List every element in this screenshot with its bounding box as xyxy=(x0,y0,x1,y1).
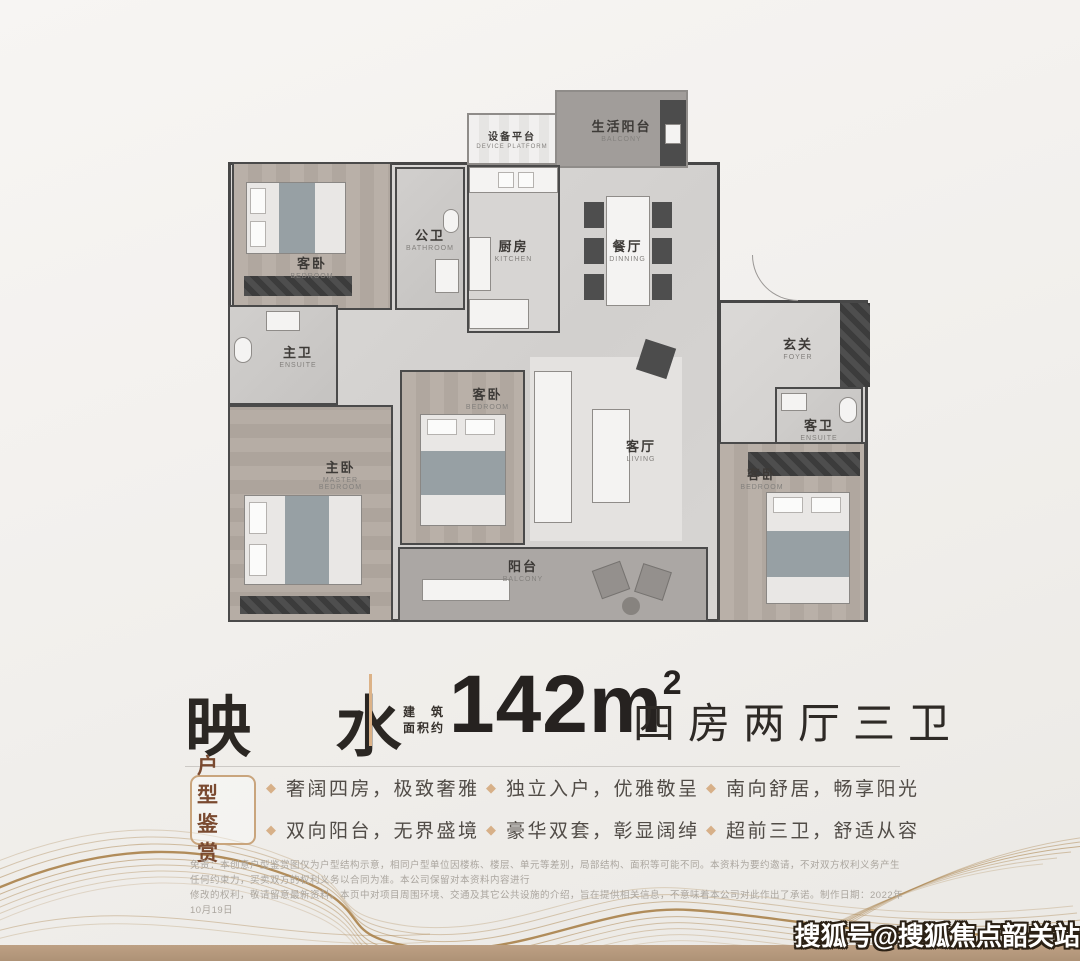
patio-chair-icon xyxy=(634,563,672,601)
dining-chair-icon xyxy=(652,202,672,228)
room-label-en: BALCONY xyxy=(591,136,651,143)
feature-text: 超前三卫，舒适从容 xyxy=(726,816,920,843)
area-prefix: 建 筑 面积约 xyxy=(403,704,443,736)
room-foyer: 玄关 FOYER xyxy=(742,303,854,391)
shower-icon xyxy=(435,259,459,293)
bed-icon xyxy=(244,495,362,585)
sink-icon xyxy=(781,393,807,411)
feature-item: ◆ 独立入户，优雅敬呈 xyxy=(486,774,700,800)
room-label-en: BEDROOM xyxy=(290,273,333,280)
room-label-en: LIVING xyxy=(626,456,656,463)
bed-icon xyxy=(420,414,506,526)
room-label-zh: 客卧 xyxy=(466,384,509,403)
room-label-zh: 主卫 xyxy=(279,342,316,361)
feature-item: ◆ 超前三卫，舒适从容 xyxy=(706,816,920,842)
feature-column-2: ◆ 独立入户，优雅敬呈 ◆ 豪华双套，彰显阔绰 xyxy=(486,774,700,842)
room-life-balcony: 生活阳台 BALCONY xyxy=(555,90,688,168)
entry-door-arc xyxy=(752,255,798,301)
dining-chair-icon xyxy=(652,238,672,264)
room-label-en: DINNING xyxy=(609,256,646,263)
feature-item: ◆ 南向舒居，畅享阳光 xyxy=(706,774,920,800)
room-label-en: BALCONY xyxy=(503,576,543,583)
diamond-bullet-icon: ◆ xyxy=(706,823,716,836)
layout-description: 四房两厅三卫 xyxy=(633,690,963,751)
room-label-zh: 客卧 xyxy=(740,464,783,483)
feature-item: ◆ 奢阔四房，极致奢雅 xyxy=(266,774,480,800)
room-label-zh: 玄关 xyxy=(783,334,813,353)
room-label-zh: 客厅 xyxy=(626,436,656,455)
diamond-bullet-icon: ◆ xyxy=(706,781,716,794)
feature-text: 豪华双套，彰显阔绰 xyxy=(506,816,700,843)
room-kitchen: 厨房 KITCHEN xyxy=(467,165,560,333)
sink-icon xyxy=(266,311,300,331)
patio-chair-icon xyxy=(592,561,630,599)
feature-column-3: ◆ 南向舒居，畅享阳光 ◆ 超前三卫，舒适从容 xyxy=(706,774,920,842)
room-living: 客厅 LIVING xyxy=(530,357,682,541)
room-label-en: MASTER BEDROOM xyxy=(311,477,371,491)
room-master-ensuite: 主卫 ENSUITE xyxy=(228,305,338,405)
room-label-en: FOYER xyxy=(783,354,813,361)
dining-chair-icon xyxy=(652,274,672,300)
features-section: 户 型 鉴 赏 ◆ 奢阔四房，极致奢雅 ◆ 双向阳台，无界盛境 ◆ 独立入户，优… xyxy=(190,774,910,850)
bed-icon xyxy=(246,182,346,254)
disclaimer-line1: 免责：本创意户型鉴赏图仅为户型结构示意，相同户型单位因楼栋、楼层、单元等差别，局… xyxy=(190,858,908,888)
coffee-table-icon xyxy=(592,409,630,503)
kitchen-sink-icon xyxy=(469,167,558,193)
feature-item: ◆ 双向阳台，无界盛境 xyxy=(266,816,480,842)
room-master-bedroom: 主卧 MASTER BEDROOM xyxy=(228,405,393,622)
room-label-en: BATHROOM xyxy=(406,245,454,252)
room-label-zh: 客卧 xyxy=(290,253,333,272)
feature-text: 奢阔四房，极致奢雅 xyxy=(286,774,480,801)
room-label-zh: 生活阳台 xyxy=(591,116,651,135)
room-label-zh: 设备平台 xyxy=(476,128,547,143)
disclaimer: 免责：本创意户型鉴赏图仅为户型结构示意，相同户型单位因楼栋、楼层、单元等差别，局… xyxy=(190,858,908,918)
room-bedroom-south: 客卧 BEDROOM xyxy=(718,442,866,622)
watermark: 搜狐号@搜狐焦点韶关站 xyxy=(795,916,1080,953)
bench-icon xyxy=(422,579,510,601)
room-label-zh: 主卧 xyxy=(311,457,371,476)
title-row: 映 水 建 筑 面积约 142m2 四房两厅三卫 xyxy=(185,672,900,758)
room-bedroom-north: 客卧 BEDROOM xyxy=(232,162,392,310)
room-label-en: ENSUITE xyxy=(800,435,837,442)
room-label-en: DEVICE PLATFORM xyxy=(476,144,547,150)
title-divider xyxy=(369,674,372,746)
diamond-bullet-icon: ◆ xyxy=(266,823,276,836)
dining-chair-icon xyxy=(584,238,604,264)
room-label-zh: 厨房 xyxy=(495,236,533,255)
title-underline xyxy=(185,766,900,767)
badge-line1: 户 型 xyxy=(197,752,254,810)
feature-column-1: ◆ 奢阔四房，极致奢雅 ◆ 双向阳台，无界盛境 xyxy=(266,774,480,842)
disclaimer-line2: 修改的权利，敬请留意最新资料。本页中对项目周围环境、交通及其它公共设施的介绍，旨… xyxy=(190,888,908,918)
room-balcony-south: 阳台 BALCONY xyxy=(398,547,708,622)
dining-chair-icon xyxy=(584,202,604,228)
counter-icon xyxy=(469,299,529,329)
floor-plan: 设备平台 DEVICE PLATFORM 生活阳台 BALCONY 客卧 BED… xyxy=(190,85,905,643)
room-bedroom-center: 客卧 BEDROOM xyxy=(400,370,525,545)
feature-item: ◆ 豪华双套，彰显阔绰 xyxy=(486,816,700,842)
room-label-en: BEDROOM xyxy=(466,404,509,411)
toilet-icon xyxy=(234,337,252,363)
area-number: 142m xyxy=(449,659,663,750)
room-dining: 餐厅 DINNING xyxy=(560,168,695,330)
room-label-zh: 阳台 xyxy=(503,556,543,575)
dining-chair-icon xyxy=(584,274,604,300)
diamond-bullet-icon: ◆ xyxy=(266,781,276,794)
feature-text: 独立入户，优雅敬呈 xyxy=(506,774,700,801)
diamond-bullet-icon: ◆ xyxy=(486,781,496,794)
toilet-icon xyxy=(839,397,857,423)
side-table-icon xyxy=(622,597,640,615)
wardrobe-icon xyxy=(240,596,370,614)
room-public-bathroom: 公卫 BATHROOM xyxy=(395,167,465,310)
feature-text: 双向阳台，无界盛境 xyxy=(286,816,480,843)
sofa-icon xyxy=(534,371,572,523)
diamond-bullet-icon: ◆ xyxy=(486,823,496,836)
stove-icon xyxy=(469,237,491,291)
room-label-en: BEDROOM xyxy=(740,484,783,491)
room-label-en: ENSUITE xyxy=(279,362,316,369)
poster-canvas: 设备平台 DEVICE PLATFORM 生活阳台 BALCONY 客卧 BED… xyxy=(0,0,1080,961)
area-prefix-line1: 建 筑 xyxy=(403,704,443,720)
appreciation-badge: 户 型 鉴 赏 xyxy=(190,775,256,845)
water-heater-icon xyxy=(665,124,681,144)
room-label-en: KITCHEN xyxy=(495,256,533,263)
room-device-platform: 设备平台 DEVICE PLATFORM xyxy=(467,113,557,165)
room-label-zh: 公卫 xyxy=(406,225,454,244)
room-label-zh: 客卫 xyxy=(800,415,837,434)
foyer-cabinet-icon xyxy=(840,303,870,387)
room-label-zh: 餐厅 xyxy=(609,236,646,255)
feature-text: 南向舒居，畅享阳光 xyxy=(726,774,920,801)
bed-icon xyxy=(766,492,850,604)
area-prefix-line2: 面积约 xyxy=(403,720,443,736)
